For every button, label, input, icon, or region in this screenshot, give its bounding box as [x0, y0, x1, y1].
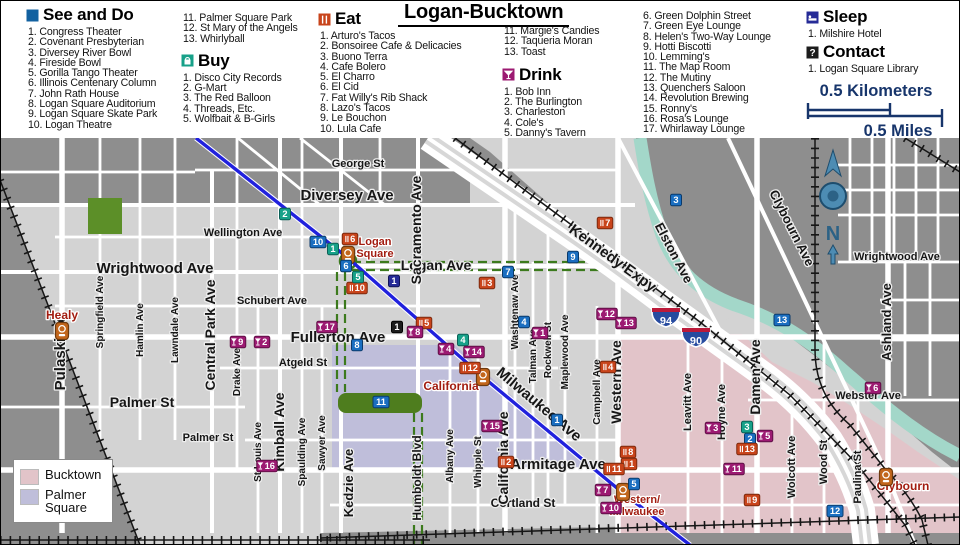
- svg-text:12: 12: [468, 363, 478, 373]
- svg-text:4: 4: [460, 335, 466, 345]
- palmer-square-swatch: [20, 489, 39, 505]
- drink-list-2: 6. Green Dolphin Street7. Green Eye Loun…: [643, 11, 771, 135]
- marker-drink-3[interactable]: 3: [705, 422, 721, 434]
- marker-contact-1[interactable]: 1: [392, 321, 403, 333]
- eat-icon: [318, 13, 331, 26]
- marker-see-13[interactable]: 13: [774, 314, 790, 326]
- svg-text:7: 7: [603, 485, 608, 495]
- marker-eat-7[interactable]: 7: [597, 217, 613, 229]
- legend-item: 13. Whirlyball: [183, 34, 298, 44]
- legend-item: 17. Whirlaway Lounge: [643, 124, 771, 134]
- svg-text:8: 8: [628, 447, 633, 457]
- legend-item: 1. Milshire Hotel: [808, 29, 946, 39]
- marker-see-4[interactable]: 4: [519, 316, 530, 328]
- station-western-milwaukee[interactable]: [617, 484, 630, 501]
- map-label: Albany Ave: [445, 429, 456, 483]
- svg-text:9: 9: [238, 337, 243, 347]
- svg-text:3: 3: [713, 423, 718, 433]
- marker-drink-2[interactable]: 2: [254, 336, 270, 348]
- map-key: Bucktown Palmer Square: [13, 459, 113, 523]
- marker-drink-5[interactable]: 5: [757, 430, 773, 442]
- map-label: Kimball Ave: [271, 392, 287, 471]
- svg-text:1: 1: [394, 322, 399, 332]
- map-label: Whipple St: [473, 436, 484, 488]
- map-label: Wellington Ave: [204, 227, 282, 239]
- legend-panel: Logan-Bucktown See and Do 1. Congress Th…: [0, 0, 960, 138]
- map-label: Leavitt Ave: [682, 373, 694, 431]
- marker-sleep-1[interactable]: 1: [389, 275, 400, 287]
- marker-drink-11[interactable]: 11: [724, 463, 745, 475]
- marker-see-12[interactable]: 12: [827, 505, 843, 517]
- map-label: Spaulding Ave: [297, 417, 308, 486]
- svg-text:1: 1: [391, 276, 396, 286]
- svg-text:3: 3: [673, 195, 678, 205]
- map-label: N: [826, 223, 840, 245]
- svg-text:2: 2: [506, 457, 511, 467]
- svg-text:4: 4: [608, 362, 614, 372]
- svg-text:13: 13: [745, 444, 755, 454]
- logan-bucktown-map-page: Logan-Bucktown See and Do 1. Congress Th…: [0, 0, 960, 545]
- map-canvas[interactable]: 9490 George StDiversey AveWellington Ave…: [0, 138, 960, 545]
- marker-buy-1[interactable]: 1: [328, 243, 339, 255]
- contact-title: Contact: [823, 42, 885, 62]
- map-label: Wrightwood Ave: [97, 260, 214, 277]
- map-key-palmer-row: Palmer Square: [20, 488, 106, 514]
- legend-col-eat-drink: 11. Margie's Candies12. Taqueria Moran13…: [502, 26, 599, 141]
- map-label: Sawyer Ave: [317, 415, 328, 471]
- svg-text:5: 5: [631, 479, 636, 489]
- contact-header: ? Contact: [806, 42, 946, 62]
- marker-drink-4[interactable]: 4: [438, 343, 454, 355]
- map-label: California: [423, 379, 479, 393]
- svg-text:12: 12: [830, 506, 840, 516]
- svg-text:5: 5: [424, 318, 429, 328]
- svg-text:6: 6: [350, 234, 355, 244]
- sleep-title: Sleep: [823, 7, 867, 27]
- see-and-do-list-2: 11. Palmer Square Park12. St Mary of the…: [183, 13, 298, 44]
- map-label: Kedzie Ave: [341, 449, 356, 517]
- legend-col-see-and-do: See and Do 1. Congress Theater2. Covenan…: [26, 5, 157, 133]
- legend-item: 5. Danny's Tavern: [504, 128, 599, 138]
- scale-km-label: 0.5 Kilometers: [820, 82, 933, 100]
- svg-text:94: 94: [660, 316, 673, 328]
- svg-text:15: 15: [490, 421, 500, 431]
- svg-text:13: 13: [777, 315, 787, 325]
- map-label: Springfield Ave: [95, 275, 106, 348]
- legend-item: 10. Lula Cafe: [320, 124, 462, 134]
- map-label: Wolcott Ave: [786, 436, 798, 499]
- drink-icon: [502, 68, 515, 81]
- buy-list: 1. Disco City Records2. G-Mart3. The Red…: [183, 73, 298, 124]
- eat-title: Eat: [335, 9, 361, 29]
- map-key-bucktown-row: Bucktown: [20, 468, 106, 485]
- map-label: Wood St: [818, 439, 830, 484]
- marker-buy-3[interactable]: 3: [742, 421, 753, 433]
- map-label: Atgeld St: [279, 357, 328, 369]
- map-label: Palmer St: [183, 432, 234, 444]
- map-label: Diversey Ave: [300, 187, 393, 204]
- buy-title: Buy: [198, 51, 230, 71]
- marker-eat-8[interactable]: 8: [620, 446, 636, 458]
- svg-text:1: 1: [554, 415, 559, 425]
- marker-eat-10[interactable]: 10: [347, 282, 368, 294]
- map-label: Maplewood Ave: [560, 314, 571, 389]
- svg-text:1: 1: [629, 459, 634, 469]
- contact-icon: ?: [806, 46, 819, 59]
- legend-item: 5. Wolfbait & B-Girls: [183, 114, 298, 124]
- marker-see-11[interactable]: 11: [373, 396, 389, 408]
- svg-text:6: 6: [343, 261, 348, 271]
- marker-drink-15[interactable]: 15: [482, 420, 503, 432]
- eat-list-2: 11. Margie's Candies12. Taqueria Moran13…: [504, 26, 599, 57]
- svg-text:11: 11: [612, 464, 622, 474]
- marker-drink-6[interactable]: 6: [865, 382, 881, 394]
- svg-text:3: 3: [487, 278, 492, 288]
- drink-title: Drink: [519, 65, 561, 85]
- svg-text:13: 13: [624, 318, 634, 328]
- svg-text:2: 2: [262, 337, 267, 347]
- map-label: Armitage Ave: [510, 456, 606, 473]
- legend-item: 10. Logan Theatre: [28, 120, 157, 130]
- svg-text:9: 9: [570, 252, 575, 262]
- map-label: Sacramento Ave: [408, 175, 424, 284]
- see-and-do-list-1: 1. Congress Theater2. Covenant Presbyter…: [28, 27, 157, 130]
- marker-see-1[interactable]: 1: [552, 414, 563, 426]
- marker-eat-9[interactable]: 9: [744, 494, 760, 506]
- map-label: Damen Ave: [747, 339, 763, 414]
- marker-drink-12[interactable]: 12: [597, 308, 618, 320]
- marker-eat-4[interactable]: 4: [600, 361, 616, 373]
- map-label: Schubert Ave: [237, 295, 307, 307]
- svg-text:1: 1: [330, 244, 335, 254]
- map-label: George St: [332, 158, 385, 170]
- marker-drink-17[interactable]: 17: [317, 321, 338, 333]
- marker-see-6[interactable]: 6: [341, 260, 352, 272]
- map-label: Western Ave: [608, 340, 624, 424]
- svg-text:90: 90: [690, 336, 702, 348]
- map-label: Washtenaw Ave: [510, 274, 521, 349]
- svg-text:5: 5: [765, 431, 770, 441]
- sleep-icon: [806, 11, 819, 24]
- drink-header: Drink: [502, 65, 599, 85]
- svg-text:11: 11: [376, 397, 386, 407]
- svg-text:10: 10: [609, 503, 619, 513]
- marker-buy-2[interactable]: 2: [280, 208, 291, 220]
- marker-see-7[interactable]: 7: [503, 266, 514, 278]
- legend-col-eat: Eat 1. Arturo's Tacos2. Bonsoiree Cafe &…: [318, 9, 462, 137]
- svg-text:14: 14: [472, 347, 483, 357]
- marker-drink-9[interactable]: 9: [230, 336, 246, 348]
- marker-buy-5[interactable]: 5: [353, 271, 364, 283]
- svg-text:10: 10: [355, 283, 365, 293]
- station-clybourn[interactable]: [880, 469, 893, 486]
- map-label: Fullerton Ave: [291, 329, 386, 346]
- marker-see-8[interactable]: 8: [352, 339, 363, 351]
- map-label: Palmer St: [110, 394, 175, 410]
- map-label: Humboldt Blvd: [410, 435, 424, 520]
- map-label: Square: [356, 248, 393, 260]
- marker-buy-4[interactable]: 4: [458, 334, 469, 346]
- marker-eat-6[interactable]: 6: [342, 233, 358, 245]
- marker-eat-13[interactable]: 13: [737, 443, 758, 455]
- map-label: Drake Ave: [232, 347, 243, 396]
- map-label: St Louis Ave: [253, 422, 264, 482]
- see-and-do-header: See and Do: [26, 5, 157, 25]
- svg-text:11: 11: [732, 464, 742, 474]
- map-label: Paulina St: [852, 450, 864, 504]
- drink-list-1: 1. Bob Inn2. The Burlington3. Charleston…: [504, 87, 599, 138]
- svg-text:17: 17: [325, 322, 335, 332]
- svg-text:3: 3: [744, 422, 749, 432]
- marker-drink-7[interactable]: 7: [595, 484, 611, 496]
- bucktown-swatch: [20, 469, 39, 485]
- map-label: Logan: [359, 236, 392, 248]
- legend-item: 13. Toast: [504, 47, 599, 57]
- svg-text:9: 9: [752, 495, 757, 505]
- svg-text:5: 5: [355, 272, 360, 282]
- svg-text:8: 8: [354, 340, 359, 350]
- svg-text:1: 1: [540, 328, 545, 338]
- marker-eat-11[interactable]: 11: [604, 463, 625, 475]
- svg-text:8: 8: [415, 327, 420, 337]
- marker-drink-8[interactable]: 8: [407, 326, 423, 338]
- see-and-do-title: See and Do: [43, 5, 134, 25]
- marker-see-10[interactable]: 10: [310, 236, 326, 248]
- legend-col-see-buy: 11. Palmer Square Park12. St Mary of the…: [181, 13, 298, 127]
- map-label: Healy: [46, 308, 78, 322]
- buy-icon: [181, 54, 194, 67]
- palmer-square-label: Palmer Square: [45, 488, 97, 514]
- marker-eat-3[interactable]: 3: [479, 277, 495, 289]
- svg-text:12: 12: [605, 309, 615, 319]
- svg-text:16: 16: [265, 461, 275, 471]
- legend-item: 1. Logan Square Library: [808, 64, 946, 74]
- svg-text:2: 2: [282, 209, 287, 219]
- see-and-do-icon: [26, 9, 39, 22]
- map-label: Lawndale Ave: [170, 297, 181, 363]
- eat-list-1: 1. Arturo's Tacos2. Bonsoiree Cafe & Del…: [320, 31, 462, 134]
- marker-drink-14[interactable]: 14: [464, 346, 485, 358]
- svg-text:2: 2: [747, 434, 752, 444]
- marker-drink-1[interactable]: 1: [532, 327, 548, 339]
- legend-col-drink2: 6. Green Dolphin Street7. Green Eye Loun…: [641, 11, 771, 138]
- legend-col-sleep-contact: Sleep 1. Milshire Hotel ? Contact 1. Log…: [806, 7, 946, 145]
- svg-text:4: 4: [521, 317, 527, 327]
- marker-see-3[interactable]: 3: [671, 194, 682, 206]
- svg-text:6: 6: [873, 383, 878, 393]
- marker-eat-12[interactable]: 12: [460, 362, 481, 374]
- marker-see-5[interactable]: 5: [629, 478, 640, 490]
- marker-drink-13[interactable]: 13: [616, 317, 637, 329]
- sleep-list: 1. Milshire Hotel: [808, 29, 946, 39]
- station-healy[interactable]: [56, 323, 69, 340]
- sleep-header: Sleep: [806, 7, 946, 27]
- svg-text:7: 7: [505, 267, 510, 277]
- marker-see-9[interactable]: 9: [568, 251, 579, 263]
- scale-bar: 0.5 Kilometers 0.5 Miles: [806, 82, 946, 140]
- marker-drink-16[interactable]: 16: [257, 460, 278, 472]
- eat-header: Eat: [318, 9, 462, 29]
- svg-text:10: 10: [313, 237, 323, 247]
- svg-text:7: 7: [605, 218, 610, 228]
- map-label: Ashland Ave: [879, 283, 894, 361]
- buy-header: Buy: [181, 51, 298, 71]
- svg-text:4: 4: [446, 344, 452, 354]
- scale-miles-label: 0.5 Miles: [864, 122, 933, 140]
- park-square: [88, 198, 122, 234]
- contact-list: 1. Logan Square Library: [808, 64, 946, 74]
- map-label: Central Park Ave: [202, 279, 218, 390]
- svg-text:?: ?: [810, 48, 816, 59]
- map-label: Wrightwood Ave: [854, 251, 940, 263]
- marker-eat-2[interactable]: 2: [498, 456, 514, 468]
- map-label: Hamlin Ave: [135, 303, 146, 357]
- marker-drink-10[interactable]: 10: [601, 502, 622, 514]
- bucktown-label: Bucktown: [45, 468, 101, 481]
